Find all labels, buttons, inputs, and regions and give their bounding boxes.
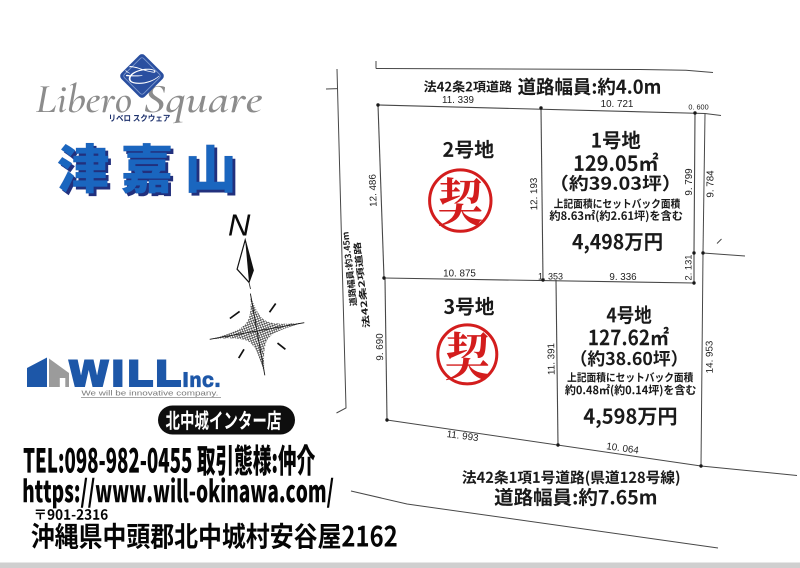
svg-text:12. 193: 12. 193 — [529, 177, 540, 210]
svg-text:9. 799: 9. 799 — [684, 168, 695, 195]
svg-text:10. 721: 10. 721 — [601, 99, 634, 110]
svg-text:11. 391: 11. 391 — [546, 343, 557, 375]
svg-text:9. 690: 9. 690 — [375, 333, 386, 361]
svg-text:We will be innovative company.: We will be innovative company. — [81, 388, 218, 397]
svg-text:10. 875: 10. 875 — [443, 269, 476, 280]
svg-text:9. 784: 9. 784 — [706, 170, 717, 198]
svg-text:12. 486: 12. 486 — [368, 173, 380, 207]
svg-text:1. 353: 1. 353 — [538, 271, 563, 281]
svg-text:2. 131: 2. 131 — [683, 255, 693, 281]
svg-text:0. 600: 0. 600 — [688, 103, 708, 112]
svg-text:11. 339: 11. 339 — [442, 95, 474, 106]
svg-text:11. 993: 11. 993 — [446, 429, 480, 444]
svg-text:9. 336: 9. 336 — [609, 272, 637, 283]
svg-text:N: N — [228, 208, 251, 243]
svg-text:10. 064: 10. 064 — [606, 441, 640, 457]
svg-text:14. 953: 14. 953 — [704, 340, 715, 373]
